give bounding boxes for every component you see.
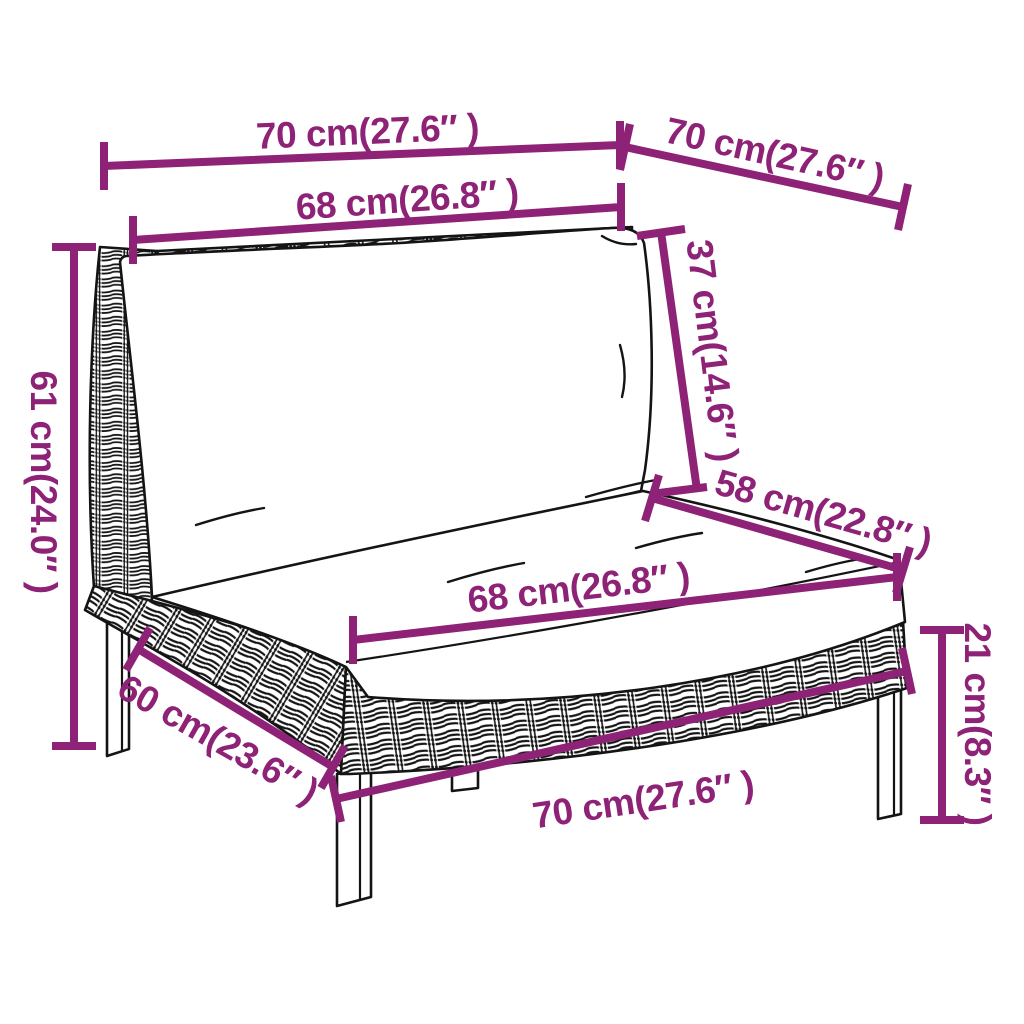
- dim-top-depth: 70 cm(27.6″ ): [620, 110, 908, 230]
- dim-label-overall-height: 61 cm(24.0″ ): [23, 370, 64, 593]
- product-dimension-diagram: 70 cm(27.6″ ) 70 cm(27.6″ ) 68 cm(26.8″ …: [0, 0, 1024, 1024]
- leg-front-right: [878, 685, 901, 819]
- dim-back-cushion-height: 37 cm(14.6″ ): [637, 229, 746, 494]
- dim-label-top-depth: 70 cm(27.6″ ): [661, 110, 888, 198]
- dim-label-base-front-width: 70 cm(27.6″ ): [530, 763, 757, 837]
- dim-top-width: 70 cm(27.6″ ): [104, 106, 620, 190]
- dim-leg-height: 21 cm(8.3″ ): [920, 623, 998, 826]
- sofa-illustration: [85, 227, 907, 906]
- dim-label-leg-height: 21 cm(8.3″ ): [957, 623, 998, 826]
- dim-overall-height: 61 cm(24.0″ ): [23, 247, 96, 746]
